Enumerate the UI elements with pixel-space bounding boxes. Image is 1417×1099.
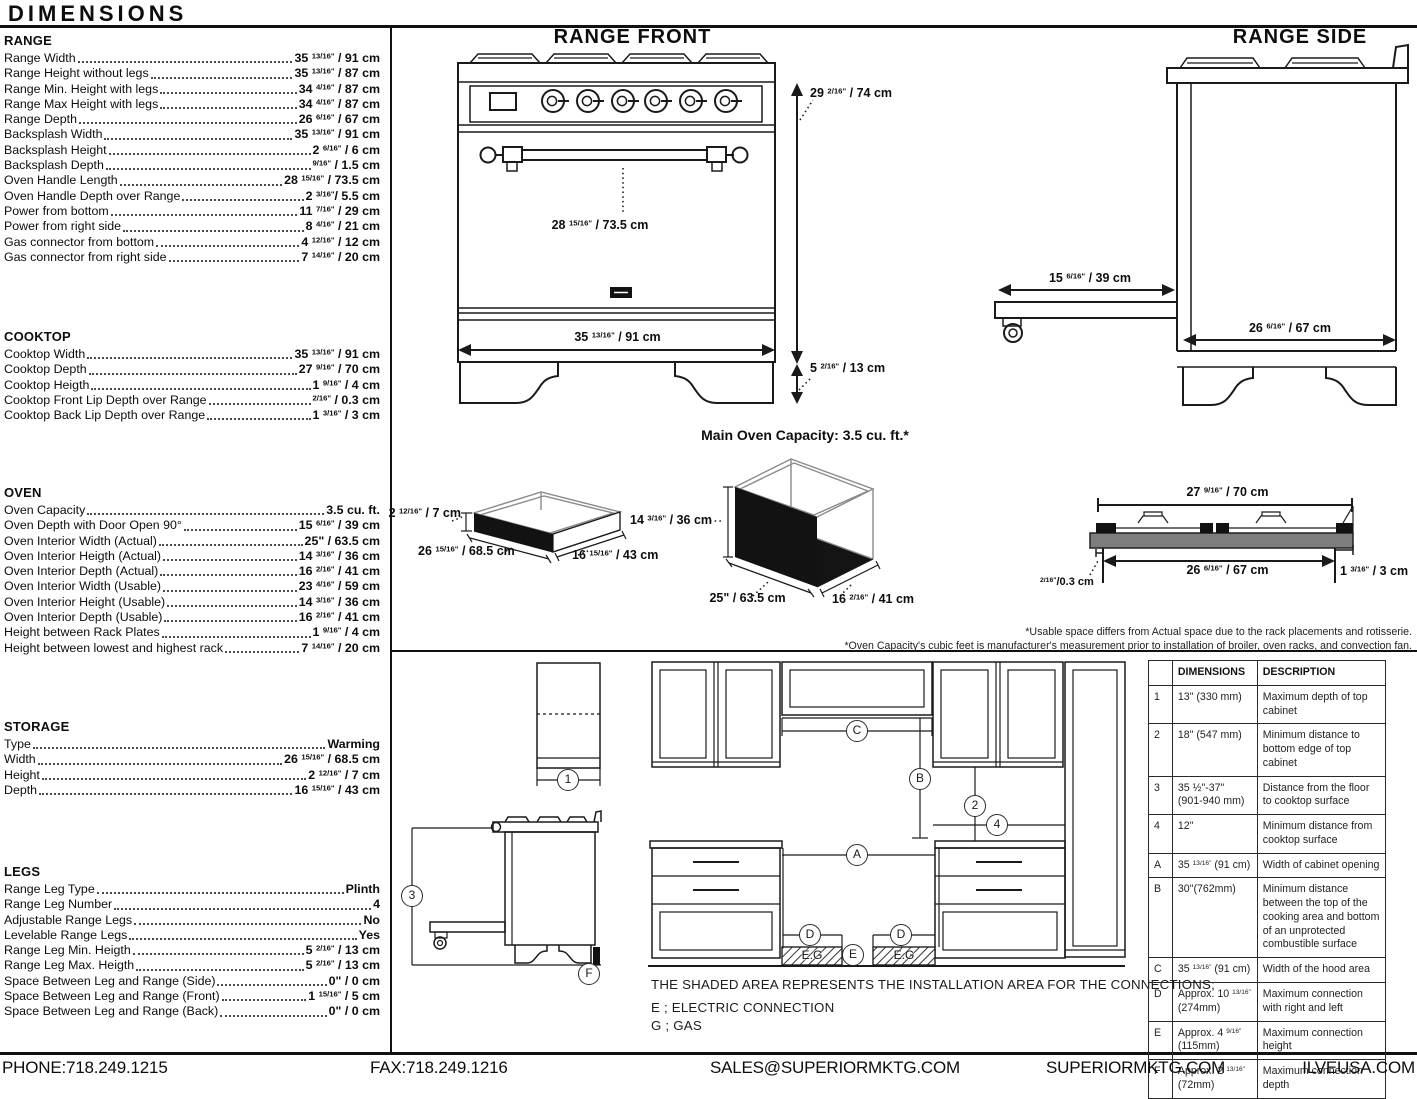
spec-value: 15 6/16" / 39 cm (299, 518, 380, 532)
spec-label: Height between lowest and highest rack (4, 641, 223, 655)
spec-row: Cooktop Width 35 13/16" / 91 cm (4, 347, 380, 362)
dotted-leader (207, 418, 310, 420)
spec-label: Range Leg Number (4, 897, 112, 911)
install-elevation-drawing (648, 658, 1140, 970)
spec-value: 3.5 cu. ft. (326, 503, 380, 517)
height-arrow (791, 83, 813, 364)
side-door-depth-label: 15 6/16" / 39 cm (1030, 271, 1150, 285)
dotted-leader (87, 357, 292, 359)
spec-label: Range Height without legs (4, 66, 149, 80)
dotted-leader (134, 923, 361, 925)
spec-row: Backsplash Width 35 13/16" / 91 cm (4, 127, 380, 142)
footnotes: *Usable space differs from Actual space … (700, 626, 1412, 654)
spec-value: 1 9/16" / 4 cm (313, 378, 381, 392)
connection-area-label: E.G (791, 948, 833, 962)
table-header-row: DIMENSIONS DESCRIPTION (1149, 661, 1386, 686)
spec-value: 23 4/16" / 59 cm (299, 579, 380, 593)
upper-cabinets-right (933, 662, 1063, 767)
drawer-width-label: 26 15/16" / 68.5 cm (418, 544, 515, 558)
spec-value: 0" / 0 cm (329, 974, 380, 988)
main-oven-capacity-label: Main Oven Capacity: 3.5 cu. ft.* (685, 427, 925, 443)
spec-value: 5 2/16" / 13 cm (306, 958, 380, 972)
range-front-title: RANGE FRONT (460, 26, 805, 49)
legend-gas: G ; GAS (651, 1018, 702, 1033)
spec-value: 16 2/16" / 41 cm (299, 564, 380, 578)
spec-row: Range Depth 26 6/16" / 67 cm (4, 112, 380, 127)
section-title: COOKTOP (4, 329, 380, 344)
spec-value: 7 14/16" / 20 cm (301, 641, 380, 655)
dotted-leader (160, 107, 296, 109)
spec-value: 16 2/16" / 41 cm (299, 610, 380, 624)
leg-height-arrow (791, 364, 812, 404)
spec-label: Oven Handle Length (4, 173, 118, 187)
spec-label: Gas connector from right side (4, 250, 167, 264)
table-header-dimensions: DIMENSIONS (1172, 661, 1257, 686)
spec-rows: Type Warming Width 26 15/16" / 68.5 cm H… (4, 737, 380, 798)
table-dimension-cell: 18" (547 mm) (1172, 724, 1257, 776)
shaded-area-note: THE SHADED AREA REPRESENTS THE INSTALLAT… (651, 977, 1215, 992)
table-row: B 30"(762mm) Minimum distance between th… (1149, 878, 1386, 958)
back-lip-label: 1 3/16" / 3 cm (1340, 564, 1408, 578)
spec-row: Range Leg Max. Heigth 5 2/16" / 13 cm (4, 958, 380, 973)
table-ref-cell: D (1149, 983, 1173, 1022)
spec-value: 1 15/16" / 5 cm (308, 989, 380, 1003)
legend-electric: E ; ELECTRIC CONNECTION (651, 1000, 834, 1015)
marker-1: 1 (557, 769, 579, 791)
spec-label: Backsplash Height (4, 143, 107, 157)
dotted-leader (182, 199, 303, 201)
spec-value: 34 4/16" / 87 cm (299, 97, 380, 111)
spec-row: Gas connector from bottom 4 12/16" / 12 … (4, 235, 380, 250)
spec-label: Backsplash Depth (4, 158, 104, 172)
dotted-leader (220, 1015, 326, 1017)
table-row: D Approx. 10 13/16" (274mm) Maximum conn… (1149, 983, 1386, 1022)
spec-row: Power from bottom 11 7/16" / 29 cm (4, 204, 380, 219)
page-title: DIMENSIONS (8, 1, 187, 27)
table-ref-cell: 3 (1149, 776, 1173, 815)
marker-2: 2 (964, 795, 986, 817)
spec-label: Type (4, 737, 31, 751)
spec-section-range: RANGE Range Width 35 13/16" / 91 cm Rang… (4, 33, 380, 265)
dotted-leader (133, 953, 304, 955)
dotted-leader (217, 984, 326, 986)
install-side-drawing (395, 658, 645, 1008)
front-height-label: 29 2/16" / 74 cm (810, 86, 892, 100)
spec-value: 5 2/16" / 13 cm (306, 943, 380, 957)
spec-value: 8 4/16" / 21 cm (306, 219, 380, 233)
spec-value: Yes (359, 928, 380, 942)
cooktop-top-width-label: 27 9/16" / 70 cm (1160, 485, 1295, 499)
burner-grates-icon (470, 54, 768, 63)
table-row: C 35 13/16" (91 cm) Width of the hood ar… (1149, 958, 1386, 983)
spec-row: Power from right side 8 4/16" / 21 cm (4, 219, 380, 234)
display-icon (490, 93, 516, 110)
spec-value: 35 13/16" / 91 cm (294, 127, 380, 141)
dotted-leader (39, 793, 292, 795)
spec-row: Gas connector from right side 7 14/16" /… (4, 250, 380, 265)
table-dimension-cell: 35 13/16" (91 cm) (1172, 958, 1257, 983)
spec-label: Cooktop Width (4, 347, 85, 361)
spec-rows: Range Leg Type Plinth Range Leg Number 4… (4, 882, 380, 1020)
control-knobs-icon (542, 90, 742, 112)
table-ref-cell: C (1149, 958, 1173, 983)
handle-length-label: 28 15/16" / 73.5 cm (510, 218, 690, 232)
spec-value: 11 7/16" / 29 cm (299, 204, 380, 218)
spec-row: Oven Interior Depth (Actual) 16 2/16" / … (4, 564, 380, 579)
table-description-cell: Maximum connection with right and left (1257, 983, 1385, 1022)
dotted-leader (162, 636, 311, 638)
spec-value: 35 13/16" / 87 cm (294, 66, 380, 80)
tall-cabinet (1065, 662, 1125, 957)
side-depth-label: 26 6/16" / 67 cm (1230, 321, 1350, 335)
spec-label: Range Max Height with legs (4, 97, 158, 111)
cooktop-bottom-width-label: 26 6/16" / 67 cm (1165, 563, 1290, 577)
spec-label: Power from right side (4, 219, 121, 233)
spec-value: 16 15/16" / 43 cm (294, 783, 380, 797)
connection-area-label: E.G (883, 948, 925, 962)
section-title: OVEN (4, 485, 380, 500)
table-ref-cell: A (1149, 853, 1173, 878)
spec-row: Range Height without legs 35 13/16" / 87… (4, 66, 380, 81)
spec-value: No (363, 913, 380, 927)
oven-handle-icon (481, 147, 748, 171)
dotted-leader (120, 184, 282, 186)
spec-label: Range Width (4, 51, 76, 65)
table-dimension-cell: Approx. 4 9/16" (115mm) (1172, 1021, 1257, 1060)
spec-row: Height between Rack Plates 1 9/16" / 4 c… (4, 625, 380, 640)
spec-row: Depth 16 15/16" / 43 cm (4, 783, 380, 798)
table-description-cell: Maximum depth of top cabinet (1257, 685, 1385, 724)
spec-label: Backsplash Width (4, 127, 102, 141)
open-door-icon (995, 302, 1177, 342)
dotted-leader (164, 620, 296, 622)
spec-value: 35 13/16" / 91 cm (294, 51, 380, 65)
cavity-height-label: 14 3/16" / 36 cm (630, 513, 710, 527)
dotted-leader (111, 214, 298, 216)
dotted-leader (78, 61, 293, 63)
spec-row: Oven Capacity 3.5 cu. ft. (4, 503, 380, 518)
spec-label: Range Leg Max. Heigth (4, 958, 134, 972)
table-row: 1 13" (330 mm) Maximum depth of top cabi… (1149, 685, 1386, 724)
front-lip-bracket (1090, 549, 1103, 575)
spec-value: 34 4/16" / 87 cm (299, 82, 380, 96)
dotted-leader (136, 969, 303, 971)
spec-row: Cooktop Front Lip Depth over Range 2/16"… (4, 393, 380, 408)
top-cabinet-icon (537, 663, 600, 768)
spec-label: Oven Interior Depth (Usable) (4, 610, 162, 624)
spec-rows: Cooktop Width 35 13/16" / 91 cm Cooktop … (4, 347, 380, 423)
table-ref-cell: E (1149, 1021, 1173, 1060)
spec-row: Backsplash Height 2 6/16" / 6 cm (4, 143, 380, 158)
spec-label: Range Depth (4, 112, 77, 126)
spec-row: Cooktop Back Lip Depth over Range 1 3/16… (4, 408, 380, 423)
spec-label: Cooktop Front Lip Depth over Range (4, 393, 207, 407)
spec-row: Space Between Leg and Range (Back) 0" / … (4, 1004, 380, 1019)
spec-row: Range Max Height with legs 34 4/16" / 87… (4, 97, 380, 112)
spec-section-cooktop: COOKTOP Cooktop Width 35 13/16" / 91 cm … (4, 329, 380, 423)
dotted-leader (106, 168, 311, 170)
hood-cabinet (782, 662, 932, 718)
spec-value: Plinth (346, 882, 380, 896)
spec-row: Oven Interior Heigth (Actual) 14 3/16" /… (4, 549, 380, 564)
table-description-cell: Maximum connection height (1257, 1021, 1385, 1060)
table-row: A 35 13/16" (91 cm) Width of cabinet ope… (1149, 853, 1386, 878)
marker-F: F (578, 963, 600, 985)
spec-value: 2 12/16" / 7 cm (308, 768, 380, 782)
table-header-ref (1149, 661, 1173, 686)
spec-rows: Range Width 35 13/16" / 91 cm Range Heig… (4, 51, 380, 265)
dotted-leader (159, 544, 303, 546)
spec-label: Cooktop Depth (4, 362, 87, 376)
width-arrow (458, 344, 775, 356)
dotted-leader (163, 590, 297, 592)
spec-row: Space Between Leg and Range (Front) 1 15… (4, 989, 380, 1004)
spec-label: Height between Rack Plates (4, 625, 160, 639)
marker-A: A (846, 844, 868, 866)
base-cabinet-left (652, 848, 780, 958)
front-lip-label: 2/16"/0.3 cm (1040, 576, 1094, 588)
footer-fax: FAX:718.249.1216 (370, 1058, 508, 1078)
spec-row: Range Width 35 13/16" / 91 cm (4, 51, 380, 66)
dimensions-sheet: { "header": { "title": "DIMENSIONS" }, "… (0, 0, 1417, 1080)
plinth-legs-icon (460, 362, 773, 403)
spec-row: Oven Interior Depth (Usable) 16 2/16" / … (4, 610, 380, 625)
dotted-leader (160, 574, 296, 576)
spec-label: Oven Capacity (4, 503, 85, 517)
spec-value: 25" / 63.5 cm (305, 534, 380, 548)
spec-section-legs: LEGS Range Leg Type Plinth Range Leg Num… (4, 864, 380, 1020)
base-cabinet-right (935, 848, 1065, 958)
dotted-leader (42, 778, 306, 780)
dotted-leader (160, 92, 296, 94)
spec-label: Width (4, 752, 36, 766)
depth-arrow (1183, 334, 1396, 346)
spec-value: 7 14/16" / 20 cm (301, 250, 380, 264)
spec-row: Oven Handle Depth over Range 2 3/16"/ 5.… (4, 189, 380, 204)
open-door-icon (430, 922, 505, 932)
footnote: *Oven Capacity's cubic feet is manufactu… (700, 640, 1412, 654)
footer-website[interactable]: SUPERIORMKTG.COM (1046, 1058, 1225, 1078)
spec-row: Height between lowest and highest rack 7… (4, 641, 380, 656)
front-leg-height-label: 5 2/16" / 13 cm (810, 361, 885, 375)
spec-label: Range Leg Type (4, 882, 95, 896)
drawer-height-label: 2 12/16" / 7 cm (385, 506, 461, 520)
dotted-leader (123, 230, 304, 232)
cooktop-slab-icon (1090, 533, 1353, 548)
spec-label: Oven Handle Depth over Range (4, 189, 180, 203)
table-row: E Approx. 4 9/16" (115mm) Maximum connec… (1149, 1021, 1386, 1060)
connection-depth-icon (593, 947, 600, 965)
dotted-leader (104, 138, 292, 140)
spec-label: Space Between Leg and Range (Back) (4, 1004, 218, 1018)
table-row: 4 12" Minimum distance from cooktop surf… (1149, 815, 1386, 854)
spec-value: 4 (373, 897, 380, 911)
door-depth-arrow (998, 284, 1175, 296)
spec-label: Range Min. Height with legs (4, 82, 158, 96)
cavity-width-label: 25" / 63.5 cm (705, 591, 790, 605)
spec-value: 27 9/16" / 70 cm (299, 362, 380, 376)
table-description-cell: Minimum distance to bottom edge of top c… (1257, 724, 1385, 776)
dotted-leader (79, 122, 297, 124)
spec-label: Gas connector from bottom (4, 235, 154, 249)
marker-C: C (846, 720, 868, 742)
spec-label: Space Between Leg and Range (Side) (4, 974, 215, 988)
vertical-divider (390, 25, 392, 1053)
range-side-drawing (985, 40, 1417, 410)
footnote: *Usable space differs from Actual space … (700, 626, 1412, 640)
spec-row: Cooktop Depth 27 9/16" / 70 cm (4, 362, 380, 377)
marker-D: D (890, 924, 912, 946)
table-description-cell: Minimum distance from cooktop surface (1257, 815, 1385, 854)
table-ref-cell: 2 (1149, 724, 1173, 776)
spec-value: 1 9/16" / 4 cm (313, 625, 381, 639)
dotted-leader (163, 559, 297, 561)
spec-label: Adjustable Range Legs (4, 913, 132, 927)
spec-label: Depth (4, 783, 37, 797)
spec-label: Oven Interior Width (Usable) (4, 579, 161, 593)
spec-rows: Oven Capacity 3.5 cu. ft. Oven Depth wit… (4, 503, 380, 656)
spec-label: Power from bottom (4, 204, 109, 218)
spec-row: Oven Interior Height (Usable) 14 3/16" /… (4, 595, 380, 610)
spec-row: Space Between Leg and Range (Side) 0" / … (4, 974, 380, 989)
table-dimension-cell: 12" (1172, 815, 1257, 854)
dotted-leader (33, 747, 326, 749)
spec-value: 2 3/16"/ 5.5 cm (306, 189, 380, 203)
spec-value: 35 13/16" / 91 cm (294, 347, 380, 361)
table-description-cell: Distance from the floor to cooktop surfa… (1257, 776, 1385, 815)
spec-label: Oven Interior Width (Actual) (4, 534, 157, 548)
table-description-cell: Width of the hood area (1257, 958, 1385, 983)
spec-value: 14 3/16" / 36 cm (299, 595, 380, 609)
table-dimension-cell: 13" (330 mm) (1172, 685, 1257, 724)
dotted-leader (91, 388, 310, 390)
burner-cap-icon (1138, 516, 1168, 523)
upper-cabinets-left (652, 662, 780, 767)
section-title: STORAGE (4, 719, 380, 734)
spec-label: Levelable Range Legs (4, 928, 127, 942)
table-description-cell: Width of cabinet opening (1257, 853, 1385, 878)
dotted-leader (151, 77, 293, 79)
spec-row: Backsplash Depth 9/16" / 1.5 cm (4, 158, 380, 173)
table-dimension-cell: Approx. 10 13/16" (274mm) (1172, 983, 1257, 1022)
dotted-leader (209, 403, 311, 405)
spec-value: 4 12/16" / 12 cm (301, 235, 380, 249)
spec-value: 9/16" / 1.5 cm (313, 158, 380, 172)
spec-label: Oven Depth with Door Open 90° (4, 518, 182, 532)
spec-value: 14 3/16" / 36 cm (299, 549, 380, 563)
dotted-leader (167, 605, 297, 607)
section-title: RANGE (4, 33, 380, 48)
spec-row: Range Leg Min. Heigth 5 2/16" / 13 cm (4, 943, 380, 958)
spec-row: Cooktop Heigth 1 9/16" / 4 cm (4, 378, 380, 393)
dotted-leader (129, 938, 356, 940)
spec-value: 2 6/16" / 6 cm (313, 143, 381, 157)
marker-4: 4 (986, 814, 1008, 836)
spec-row: Range Leg Type Plinth (4, 882, 380, 897)
spec-label: Oven Interior Depth (Actual) (4, 564, 158, 578)
dotted-leader (87, 513, 324, 515)
dimensions-table: DIMENSIONS DESCRIPTION 1 13" (330 mm) Ma… (1148, 660, 1386, 1099)
table-ref-cell: 4 (1149, 815, 1173, 854)
footer-website-ilve[interactable]: ILVEUSA.COM (1302, 1058, 1415, 1078)
table-header-description: DESCRIPTION (1257, 661, 1385, 686)
spec-label: Height (4, 768, 40, 782)
table-description-cell: Minimum distance between the top of the … (1257, 878, 1385, 958)
spec-label: Oven Interior Height (Usable) (4, 595, 165, 609)
dotted-leader (97, 892, 344, 894)
marker-B: B (909, 768, 931, 790)
dotted-leader (38, 763, 282, 765)
table-dimension-cell: 35 13/16" (91 cm) (1172, 853, 1257, 878)
spec-value: 28 15/16" / 73.5 cm (284, 173, 380, 187)
footer-email[interactable]: SALES@SUPERIORMKTG.COM (710, 1058, 960, 1078)
spec-row: Oven Interior Width (Actual) 25" / 63.5 … (4, 534, 380, 549)
spec-label: Cooktop Heigth (4, 378, 89, 392)
table-row: 2 18" (547 mm) Minimum distance to botto… (1149, 724, 1386, 776)
spec-row: Adjustable Range Legs No (4, 913, 380, 928)
spec-label: Cooktop Back Lip Depth over Range (4, 408, 205, 422)
spec-row: Oven Interior Width (Usable) 23 4/16" / … (4, 579, 380, 594)
marker-3: 3 (401, 885, 423, 907)
spec-row: Width 26 15/16" / 68.5 cm (4, 752, 380, 767)
table-row: 3 35 ½"-37" (901-940 mm) Distance from t… (1149, 776, 1386, 815)
section-title: LEGS (4, 864, 380, 879)
spec-row: Levelable Range Legs Yes (4, 928, 380, 943)
spec-row: Oven Depth with Door Open 90° 15 6/16" /… (4, 518, 380, 533)
table-dimension-cell: 30"(762mm) (1172, 878, 1257, 958)
spec-row: Range Leg Number 4 (4, 897, 380, 912)
spec-value: 26 15/16" / 68.5 cm (284, 752, 380, 766)
spec-value: 0" / 0 cm (329, 1004, 380, 1018)
front-width-label: 35 13/16" / 91 cm (530, 330, 705, 344)
dotted-leader (114, 908, 371, 910)
table-ref-cell: 1 (1149, 685, 1173, 724)
spec-value: Warming (327, 737, 380, 751)
dotted-leader (89, 373, 297, 375)
table-dimension-cell: 35 ½"-37" (901-940 mm) (1172, 776, 1257, 815)
marker-D: D (799, 924, 821, 946)
dotted-leader (184, 529, 297, 531)
marker-E: E (842, 944, 864, 966)
spec-row: Range Min. Height with legs 34 4/16" / 8… (4, 82, 380, 97)
spec-section-storage: STORAGE Type Warming Width 26 15/16" / 6… (4, 719, 380, 798)
dotted-leader (225, 651, 299, 653)
backsplash-icon (1393, 45, 1408, 68)
table-ref-cell: B (1149, 878, 1173, 958)
spec-label: Range Leg Min. Heigth (4, 943, 131, 957)
dotted-leader (109, 153, 311, 155)
spec-label: Oven Interior Heigth (Actual) (4, 549, 161, 563)
spec-label: Space Between Leg and Range (Front) (4, 989, 220, 1003)
spec-row: Type Warming (4, 737, 380, 752)
spec-row: Height 2 12/16" / 7 cm (4, 768, 380, 783)
spec-value: 1 3/16" / 3 cm (313, 408, 381, 422)
spec-value: 2/16" / 0.3 cm (313, 393, 380, 407)
dotted-leader (169, 260, 300, 262)
dotted-leader (156, 245, 299, 247)
footer-phone: PHONE:718.249.1215 (2, 1058, 168, 1078)
cavity-depth-label: 16 2/16" / 41 cm (832, 592, 914, 606)
table-body: 1 13" (330 mm) Maximum depth of top cabi… (1149, 685, 1386, 1098)
dotted-leader (222, 999, 307, 1001)
spec-row: Oven Handle Length 28 15/16" / 73.5 cm (4, 173, 380, 188)
spec-value: 26 6/16" / 67 cm (299, 112, 380, 126)
spec-section-oven: OVEN Oven Capacity 3.5 cu. ft. Oven Dept… (4, 485, 380, 656)
